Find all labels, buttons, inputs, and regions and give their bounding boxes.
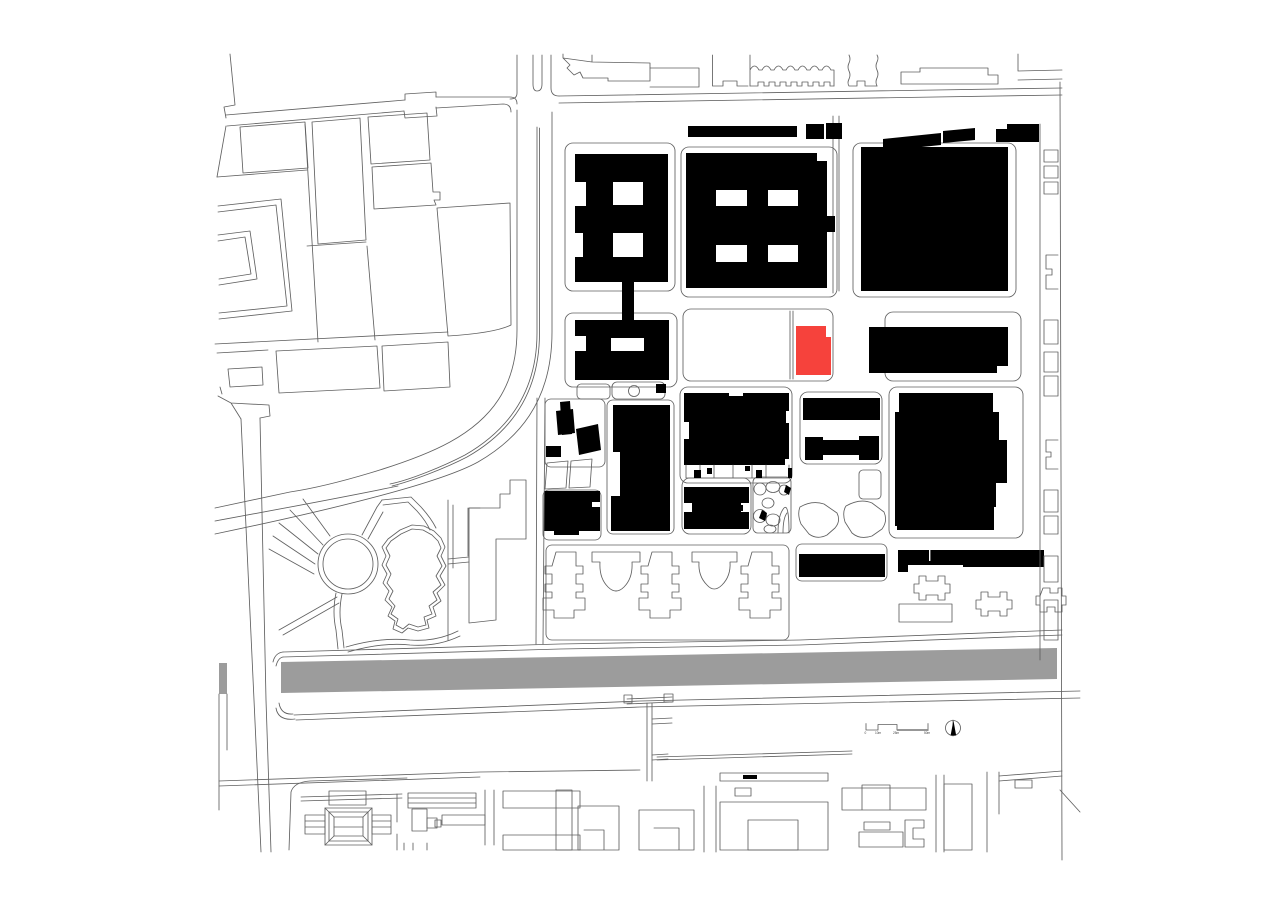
- svg-text:10m: 10m: [875, 731, 882, 735]
- svg-text:0: 0: [865, 731, 867, 735]
- svg-text:50m: 50m: [924, 731, 931, 735]
- svg-text:25m: 25m: [893, 731, 900, 735]
